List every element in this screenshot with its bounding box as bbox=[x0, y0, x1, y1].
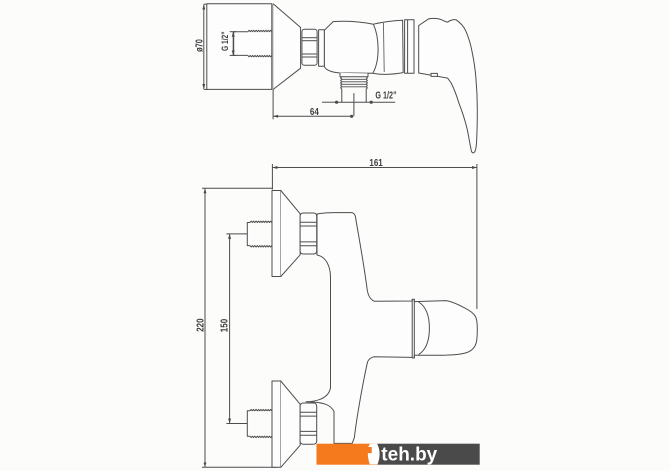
svg-text:64: 64 bbox=[310, 106, 319, 117]
svg-text:161: 161 bbox=[369, 157, 382, 168]
svg-text:150: 150 bbox=[218, 319, 229, 332]
svg-text:G 1/2”: G 1/2” bbox=[220, 31, 230, 51]
svg-text:G 1/2”: G 1/2” bbox=[375, 89, 396, 100]
svg-text:teh.by: teh.by bbox=[381, 445, 437, 466]
svg-text:ø70: ø70 bbox=[194, 39, 205, 52]
svg-text:220: 220 bbox=[195, 318, 206, 331]
